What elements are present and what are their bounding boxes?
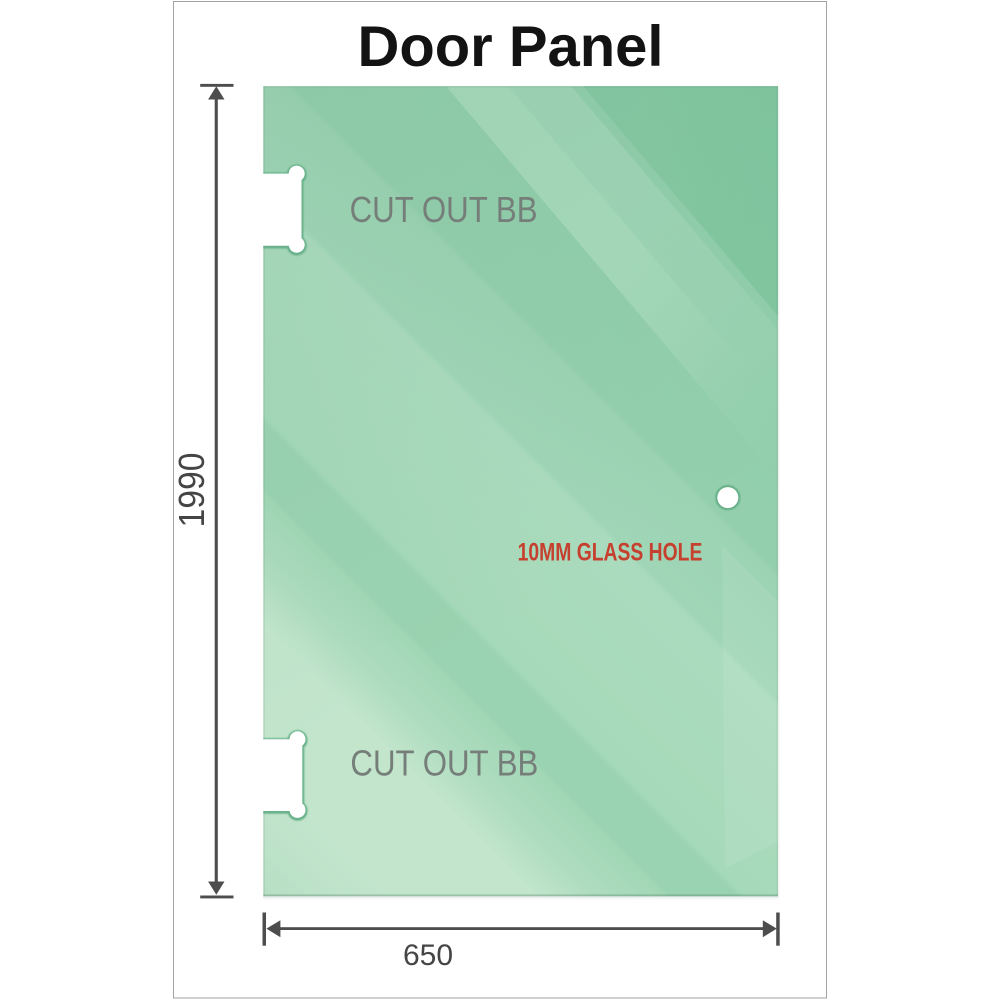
svg-text:1990: 1990 xyxy=(171,453,212,528)
svg-text:650: 650 xyxy=(403,939,453,972)
svg-text:10MM GLASS HOLE: 10MM GLASS HOLE xyxy=(518,538,703,566)
svg-text:Door Panel: Door Panel xyxy=(358,15,664,79)
svg-text:CUT OUT BB: CUT OUT BB xyxy=(350,743,538,784)
svg-text:CUT OUT BB: CUT OUT BB xyxy=(350,189,538,230)
